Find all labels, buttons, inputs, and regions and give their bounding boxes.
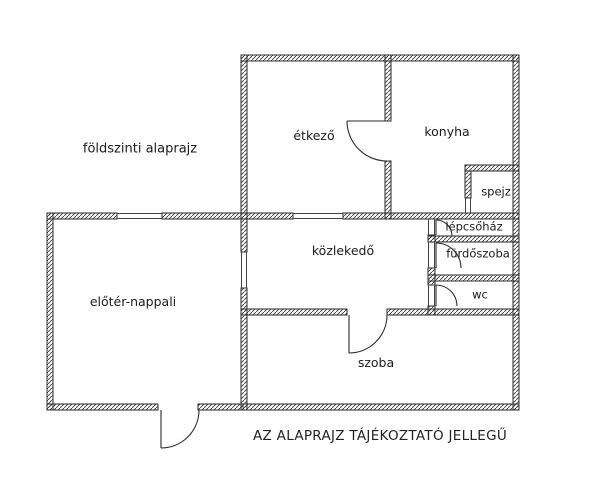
wall-spejz-left (465, 171, 471, 198)
window-eloter-top (117, 214, 162, 219)
room-label-lepcsohaz: lépcsőház (445, 221, 502, 233)
wall-eloter-kozlekedo-upper (241, 219, 247, 252)
wall-szoba-top-right (387, 309, 519, 315)
wall-szoba-top-left (241, 309, 347, 315)
door-szoba (349, 315, 387, 353)
wall-etkezo-konyha-lower (385, 161, 391, 219)
floorplan-drawing (0, 0, 600, 485)
wall-main-segment-3 (343, 213, 519, 219)
wall-bottom-eloter-right (198, 404, 243, 410)
room-label-furdoszoba: fürdőszoba (446, 248, 510, 260)
room-label-eloter-nappali: előtér-nappali (90, 296, 176, 309)
door-entrance (161, 410, 199, 448)
wall-eloter-kozlekedo-lower (241, 288, 247, 410)
wall-main-segment-1 (47, 213, 117, 219)
floorplan-canvas: földszinti alaprajz étkező konyha spejz … (0, 0, 600, 485)
wall-lepcsohaz-bottom (428, 236, 519, 242)
wall-bottom-eloter-left (47, 404, 158, 410)
plan-title: földszinti alaprajz (83, 142, 197, 157)
jamb-furdoszoba-door (429, 242, 435, 268)
wall-right (513, 55, 519, 410)
wall-main-segment-2 (162, 213, 293, 219)
wall-left (47, 213, 53, 410)
door-etkezo (347, 121, 387, 161)
room-label-szoba: szoba (358, 357, 394, 370)
jamb-lepcsohaz-door (429, 219, 435, 236)
wall-top (241, 55, 519, 61)
wall-etkezo-left (241, 55, 247, 219)
room-label-spejz: spejz (481, 186, 511, 198)
room-label-etkezo: étkező (293, 130, 334, 143)
room-label-konyha: konyha (424, 126, 469, 139)
wall-bottom-szoba (241, 404, 519, 410)
disclaimer-text: AZ ALAPRAJZ TÁJÉKOZTATÓ JELLEGŰ (253, 428, 507, 444)
wall-furdoszoba-bottom (428, 275, 519, 281)
wall-spejz-top (465, 165, 519, 171)
wall-etkezo-konyha-upper (385, 55, 391, 121)
jamb-wc-door (429, 285, 435, 306)
opening-spejz (466, 198, 471, 213)
room-label-wc: wc (472, 289, 488, 301)
opening-kozlekedo-etkezo (293, 214, 343, 219)
opening-eloter-kozlekedo (242, 252, 247, 288)
room-label-kozlekedo: közlekedő (312, 245, 374, 258)
door-wc (436, 285, 457, 306)
